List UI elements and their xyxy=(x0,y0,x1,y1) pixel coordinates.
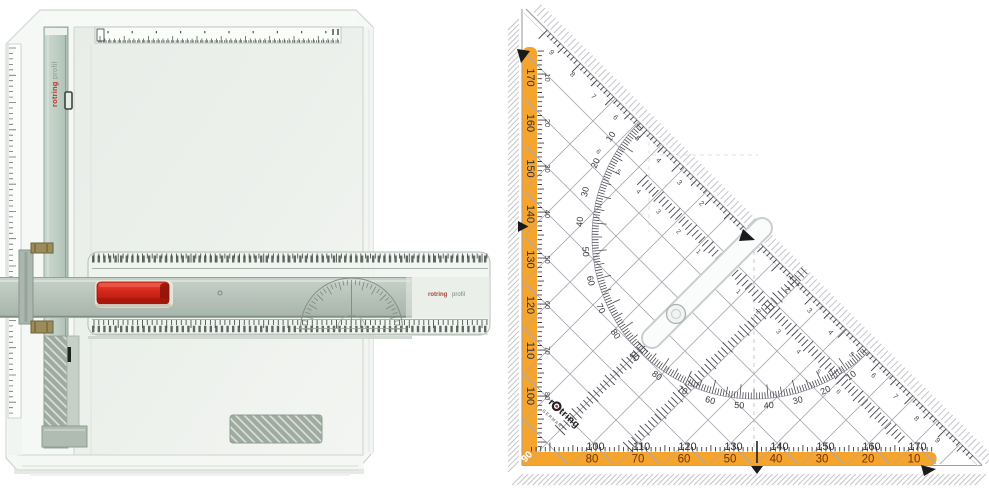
svg-text:140: 140 xyxy=(770,441,788,453)
svg-text:20: 20 xyxy=(543,119,552,127)
svg-text:110: 110 xyxy=(524,342,536,360)
svg-text:40: 40 xyxy=(574,216,585,227)
svg-text:40: 40 xyxy=(543,210,552,218)
svg-text:120: 120 xyxy=(524,296,536,314)
svg-text:40: 40 xyxy=(770,454,783,466)
svg-text:80: 80 xyxy=(586,454,599,466)
svg-text:70: 70 xyxy=(632,454,645,466)
svg-text:70: 70 xyxy=(543,346,552,354)
svg-text:160: 160 xyxy=(862,441,880,453)
svg-text:50: 50 xyxy=(734,400,745,411)
svg-text:110: 110 xyxy=(633,441,651,453)
svg-text:170: 170 xyxy=(524,68,536,86)
svg-text:60: 60 xyxy=(543,301,552,309)
svg-text:profil: profil xyxy=(452,292,465,298)
svg-text:170: 170 xyxy=(908,441,926,453)
svg-text:150: 150 xyxy=(816,441,834,453)
svg-text:50: 50 xyxy=(580,246,591,257)
svg-text:30: 30 xyxy=(816,454,829,466)
svg-text:50: 50 xyxy=(543,255,552,263)
svg-text:rotring: rotring xyxy=(50,81,59,107)
svg-text:120: 120 xyxy=(678,441,696,453)
svg-text:40: 40 xyxy=(763,400,774,411)
svg-text:10: 10 xyxy=(908,454,921,466)
svg-text:20: 20 xyxy=(862,454,875,466)
svg-text:30: 30 xyxy=(543,164,552,172)
svg-text:130: 130 xyxy=(724,441,742,453)
svg-text:100: 100 xyxy=(524,387,536,405)
svg-text:60: 60 xyxy=(678,454,691,466)
svg-text:130: 130 xyxy=(524,250,536,268)
svg-text:160: 160 xyxy=(524,114,536,132)
svg-text:150: 150 xyxy=(524,159,536,177)
svg-text:50: 50 xyxy=(724,454,737,466)
svg-text:140: 140 xyxy=(524,205,536,223)
svg-text:10: 10 xyxy=(543,73,552,81)
svg-text:rotring: rotring xyxy=(428,292,448,298)
svg-text:100: 100 xyxy=(586,441,604,453)
svg-text:profil: profil xyxy=(52,61,59,79)
